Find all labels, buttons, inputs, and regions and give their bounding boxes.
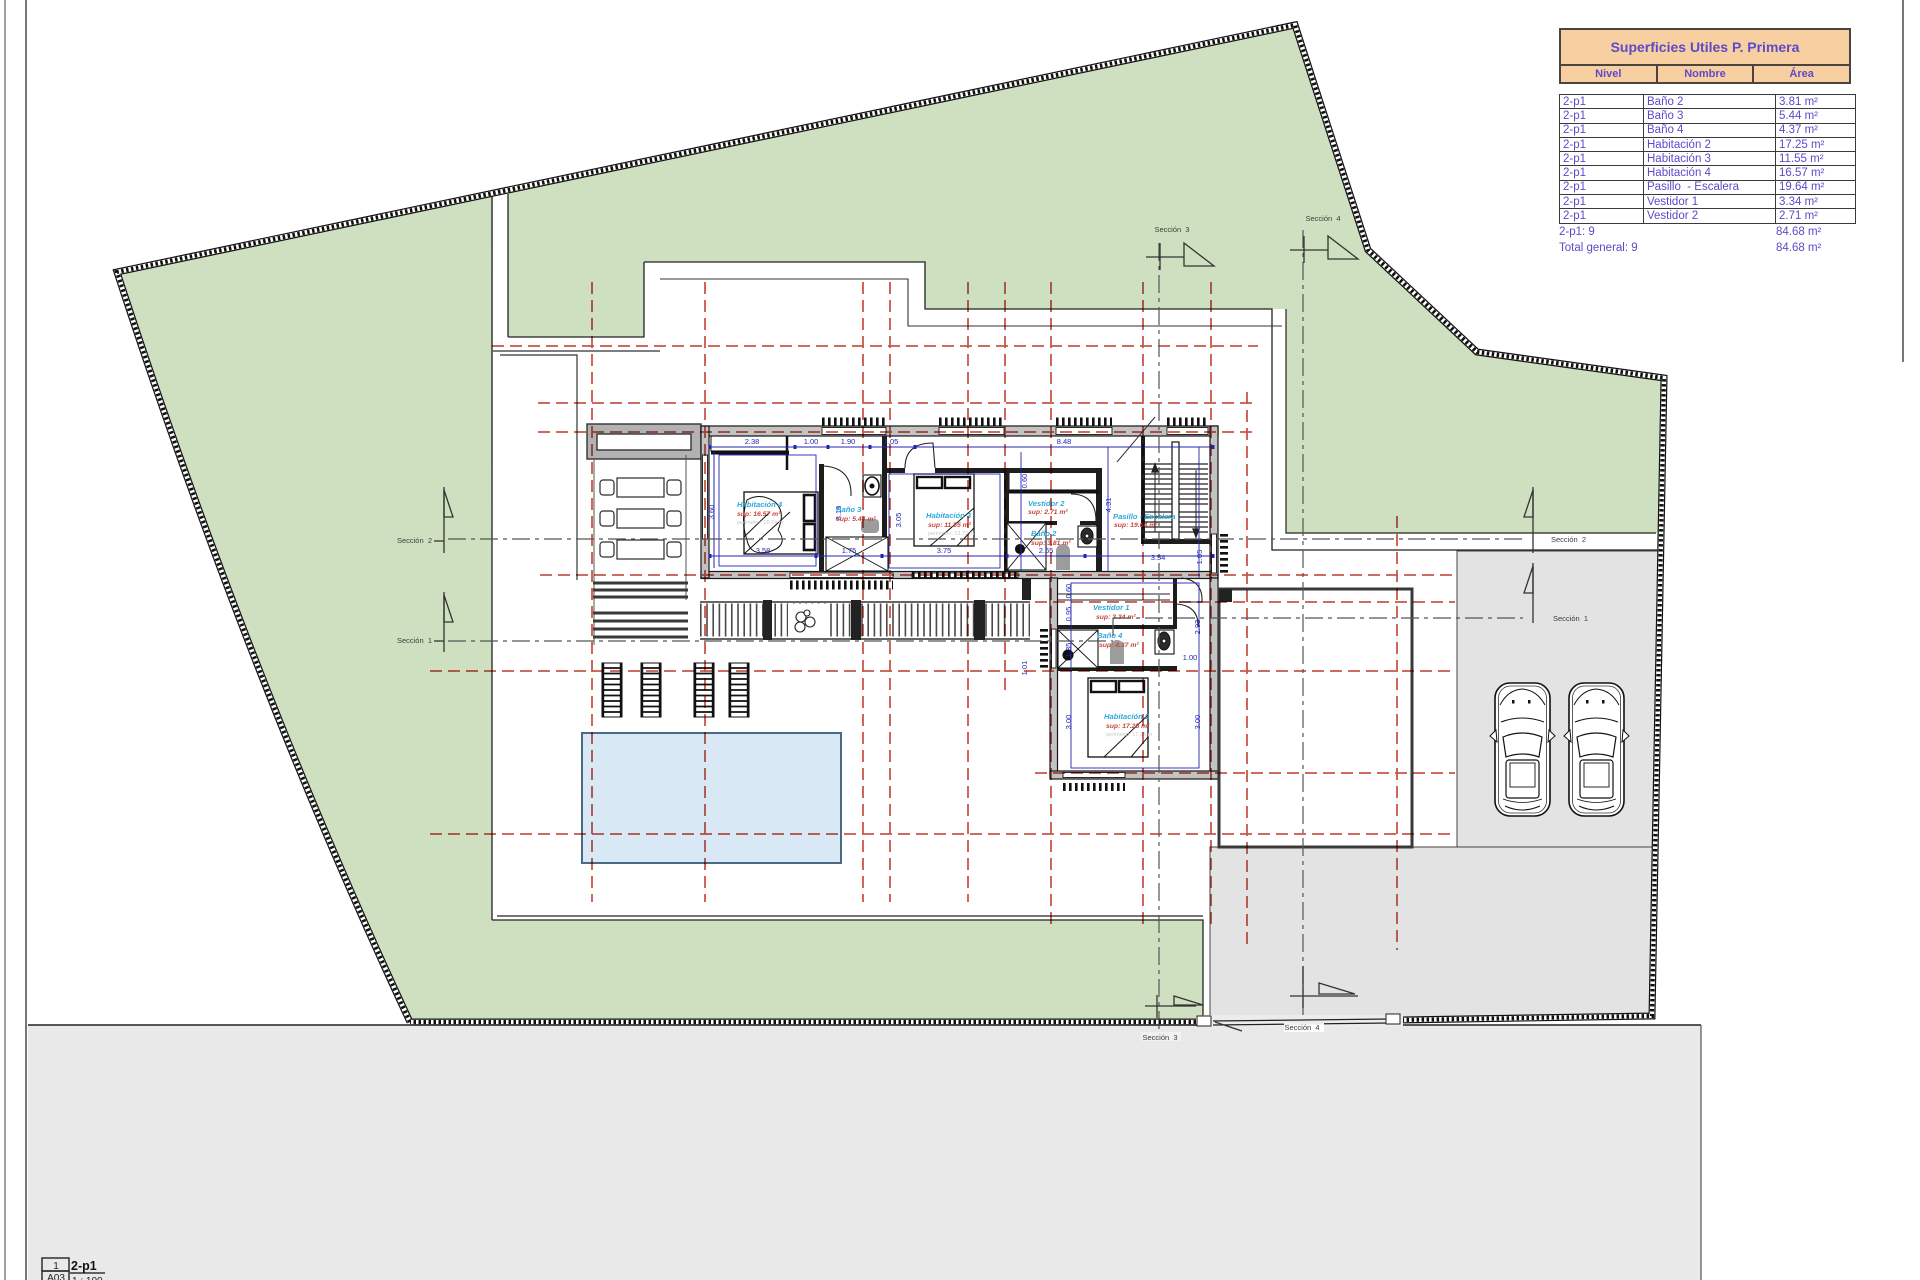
svg-text:sup: 11.55 m²: sup: 11.55 m²	[928, 522, 972, 529]
svg-text:3.60: 3.60	[707, 505, 716, 520]
svg-text:Baño 3: Baño 3	[836, 505, 862, 514]
svg-text:1.05: 1.05	[884, 437, 899, 446]
svg-text:3.00: 3.00	[1193, 715, 1202, 730]
svg-text:Pasillo - Escalera: Pasillo - Escalera	[1113, 512, 1175, 521]
svg-text:1.00: 1.00	[804, 437, 819, 446]
svg-text:perimetro: 16.74 m: perimetro: 16.74 m	[737, 520, 784, 526]
svg-text:sup: 5.44 m²: sup: 5.44 m²	[836, 516, 876, 523]
svg-text:sup: 2.71 m²: sup: 2.71 m²	[1028, 509, 1068, 516]
svg-text:Habitación 3: Habitación 3	[926, 511, 972, 520]
svg-text:2.93: 2.93	[1193, 620, 1202, 635]
svg-text:4.31: 4.31	[1104, 498, 1113, 513]
svg-text:Sección 1: Sección 1	[397, 636, 432, 645]
svg-text:perimetro: 17.35 m: perimetro: 17.35 m	[1106, 732, 1153, 738]
svg-text:sup: 4.37 m²: sup: 4.37 m²	[1099, 642, 1139, 649]
svg-text:1.75: 1.75	[842, 546, 857, 555]
svg-text:A03: A03	[47, 1273, 65, 1280]
svg-text:8.48: 8.48	[1057, 437, 1072, 446]
svg-text:1.00: 1.00	[1183, 653, 1198, 662]
svg-text:0.60: 0.60	[1064, 584, 1073, 599]
svg-text:Sección 2: Sección 2	[397, 536, 432, 545]
svg-text:1.90: 1.90	[841, 437, 856, 446]
svg-text:3.58: 3.58	[756, 546, 771, 555]
svg-text:3.54: 3.54	[1151, 553, 1166, 562]
svg-text:1.05: 1.05	[1195, 550, 1204, 565]
svg-text:Sección 4: Sección 4	[1284, 1023, 1319, 1032]
svg-text:Vestidor 1: Vestidor 1	[1093, 603, 1129, 612]
svg-text:sup: 19.64 m²: sup: 19.64 m²	[1114, 522, 1158, 529]
svg-text:Sección 2: Sección 2	[1551, 535, 1586, 544]
svg-text:Sección 3: Sección 3	[1142, 1033, 1177, 1042]
svg-text:Sección 1: Sección 1	[1553, 614, 1588, 623]
svg-text:Baño 4: Baño 4	[1097, 631, 1123, 640]
svg-text:3.05: 3.05	[894, 513, 903, 528]
svg-text:3.75: 3.75	[937, 546, 952, 555]
svg-text:Sección 3: Sección 3	[1154, 225, 1189, 234]
svg-text:Baño 2: Baño 2	[1031, 529, 1057, 538]
svg-text:2.38: 2.38	[745, 437, 760, 446]
svg-text:3.00: 3.00	[1064, 715, 1073, 730]
svg-text:Sección 4: Sección 4	[1305, 214, 1340, 223]
svg-text:sup: 16.57 m²: sup: 16.57 m²	[737, 511, 781, 518]
svg-text:Habitación 4: Habitación 4	[737, 500, 783, 509]
svg-text:0.60: 0.60	[1020, 474, 1029, 489]
svg-text:0.95: 0.95	[1064, 607, 1073, 622]
svg-text:1.01: 1.01	[1020, 661, 1029, 676]
svg-text:2-p1: 2-p1	[71, 1259, 97, 1273]
svg-text:Vestidor 2: Vestidor 2	[1028, 499, 1065, 508]
svg-text:1 : 100: 1 : 100	[72, 1276, 103, 1280]
svg-text:1.35: 1.35	[1064, 643, 1073, 658]
